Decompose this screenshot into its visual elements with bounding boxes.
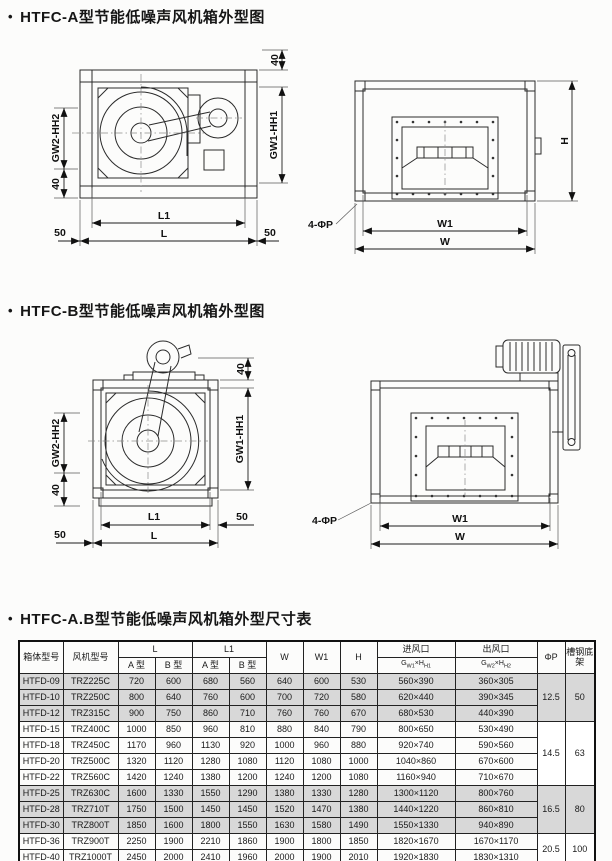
table-row: HTFD-12TRZ315C900750860710760760670680×5…	[19, 706, 595, 722]
table-cell: 1130	[192, 738, 229, 754]
htfc-b-front-drawing: W1 W 4-ΦP	[308, 328, 608, 560]
table-cell: 530	[340, 674, 377, 690]
col-base: 槽钢底架	[565, 641, 595, 674]
table-cell: 920×740	[377, 738, 455, 754]
table-cell: 1800	[192, 818, 229, 834]
table-cell: 600	[155, 674, 192, 690]
dim-label-40-top: 40	[235, 363, 247, 375]
dim-label-h: H	[559, 137, 571, 145]
phi-p-group-cell: 16.5	[537, 786, 565, 834]
table-cell: 1120	[155, 754, 192, 770]
table-cell: 1040×860	[377, 754, 455, 770]
section-table-title-text: HTFC-A.B型节能低噪声风机箱外型尺寸表	[20, 611, 312, 628]
col-W: W	[266, 641, 303, 674]
table-cell: 1450	[192, 802, 229, 818]
dim-label-40-left: 40	[50, 178, 62, 190]
table-cell: 1200	[303, 770, 340, 786]
table-cell: 530×490	[455, 722, 537, 738]
table-cell: 670	[340, 706, 377, 722]
section-a-title: •HTFC-A型节能低噪声风机箱外型图	[8, 6, 265, 27]
table-cell: TRZ900T	[63, 834, 118, 850]
table-cell: HTFD-12	[19, 706, 63, 722]
table-cell: 1330	[155, 786, 192, 802]
dimension-table: 箱体型号 风机型号 L L1 W W1 H 进风口 出风口 ΦP 槽钢底架 A …	[18, 640, 596, 861]
table-cell: 790	[340, 722, 377, 738]
table-cell: 860×810	[455, 802, 537, 818]
col-L1: L1	[192, 641, 266, 658]
table-cell: HTFD-40	[19, 850, 63, 861]
table-cell: 940×890	[455, 818, 537, 834]
table-cell: 1600	[155, 818, 192, 834]
dim-label-w1: W1	[437, 218, 453, 230]
table-cell: 960	[192, 722, 229, 738]
col-fan-model: 风机型号	[63, 641, 118, 674]
table-cell: 560	[229, 674, 266, 690]
table-cell: HTFD-22	[19, 770, 63, 786]
dim-label-50-right: 50	[264, 227, 276, 239]
spec-table-body: HTFD-09TRZ225C720600680560640600530560×3…	[19, 674, 595, 861]
table-cell: HTFD-15	[19, 722, 63, 738]
table-cell: 1820×1670	[377, 834, 455, 850]
table-cell: 560×390	[377, 674, 455, 690]
dim-label-l: L	[151, 530, 158, 542]
table-cell: HTFD-25	[19, 786, 63, 802]
table-cell: 1900	[155, 834, 192, 850]
table-row: HTFD-40TRZ1000T2450200024101960200019002…	[19, 850, 595, 861]
bullet-icon: •	[8, 9, 13, 24]
table-row: HTFD-22TRZ560C14201240138012001240120010…	[19, 770, 595, 786]
table-cell: 680×530	[377, 706, 455, 722]
table-cell: 2000	[155, 850, 192, 861]
col-outlet-formula: GW2×HH2	[455, 658, 537, 674]
table-cell: 1860	[229, 834, 266, 850]
dim-label-gw1hh1: GW1-HH1	[234, 415, 246, 464]
dim-label-4phip: 4-ΦP	[312, 515, 337, 527]
table-cell: 1470	[303, 802, 340, 818]
table-cell: 640	[155, 690, 192, 706]
table-cell: 1080	[303, 754, 340, 770]
dim-label-4phip: 4-ΦP	[308, 219, 333, 231]
table-cell: 1670×1170	[455, 834, 537, 850]
table-cell: 840	[303, 722, 340, 738]
table-cell: 2450	[118, 850, 155, 861]
table-cell: 1900	[303, 850, 340, 861]
table-cell: 1520	[266, 802, 303, 818]
table-cell: 1550	[192, 786, 229, 802]
table-cell: HTFD-20	[19, 754, 63, 770]
table-cell: 1850	[340, 834, 377, 850]
dim-label-w: W	[440, 236, 450, 248]
table-row: HTFD-25TRZ630C16001330155012901380133012…	[19, 786, 595, 802]
phi-p-group-cell: 20.5	[537, 834, 565, 861]
table-cell: 810	[229, 722, 266, 738]
table-cell: 620×440	[377, 690, 455, 706]
table-cell: 1580	[303, 818, 340, 834]
table-cell: 590×560	[455, 738, 537, 754]
table-cell: TRZ225C	[63, 674, 118, 690]
table-cell: 2250	[118, 834, 155, 850]
table-cell: 850	[155, 722, 192, 738]
table-cell: 640	[266, 674, 303, 690]
col-L-type-a: A 型	[118, 658, 155, 674]
phi-p-group-cell: 14.5	[537, 722, 565, 786]
table-cell: TRZ400C	[63, 722, 118, 738]
dim-label-l1: L1	[158, 210, 170, 222]
table-cell: 680	[192, 674, 229, 690]
table-cell: 960	[303, 738, 340, 754]
section-b-title-text: HTFC-B型节能低噪声风机箱外型图	[20, 303, 265, 320]
table-cell: 1380	[192, 770, 229, 786]
table-cell: 1830×1310	[455, 850, 537, 861]
dim-label-l: L	[161, 228, 168, 240]
table-cell: 960	[155, 738, 192, 754]
table-cell: 1850	[118, 818, 155, 834]
table-cell: TRZ250C	[63, 690, 118, 706]
table-cell: 360×305	[455, 674, 537, 690]
table-cell: 1630	[266, 818, 303, 834]
table-cell: 760	[266, 706, 303, 722]
dim-label-w: W	[455, 531, 465, 543]
table-cell: 1240	[266, 770, 303, 786]
table-cell: 710×670	[455, 770, 537, 786]
table-cell: 580	[340, 690, 377, 706]
table-cell: TRZ630C	[63, 786, 118, 802]
bullet-icon: •	[8, 611, 13, 626]
table-cell: 1330	[303, 786, 340, 802]
table-cell: TRZ800T	[63, 818, 118, 834]
section-table-title: •HTFC-A.B型节能低噪声风机箱外型尺寸表	[8, 608, 312, 629]
table-cell: 1200	[229, 770, 266, 786]
table-cell: 920	[229, 738, 266, 754]
table-row: HTFD-15TRZ400C1000850960810880840790800×…	[19, 722, 595, 738]
table-cell: 760	[303, 706, 340, 722]
table-cell: TRZ1000T	[63, 850, 118, 861]
table-cell: 1000	[340, 754, 377, 770]
table-cell: HTFD-09	[19, 674, 63, 690]
col-L1-type-b: B 型	[229, 658, 266, 674]
table-row: HTFD-20TRZ500C13201120128010801120108010…	[19, 754, 595, 770]
col-L: L	[118, 641, 192, 658]
table-cell: 670×600	[455, 754, 537, 770]
table-cell: 1490	[340, 818, 377, 834]
col-W1: W1	[303, 641, 340, 674]
dim-label-50-left: 50	[54, 529, 66, 541]
table-cell: 440×390	[455, 706, 537, 722]
table-row: HTFD-10TRZ250C800640760600700720580620×4…	[19, 690, 595, 706]
table-cell: 1960	[229, 850, 266, 861]
table-cell: 1240	[155, 770, 192, 786]
htfc-a-side-drawing: 40 GW1-HH1 GW2-HH2 40 L1 L 50 50	[52, 38, 302, 256]
dim-label-40-top: 40	[269, 54, 281, 66]
table-row: HTFD-36TRZ900T22501900221018601900180018…	[19, 834, 595, 850]
base-group-cell: 50	[565, 674, 595, 722]
table-cell: HTFD-10	[19, 690, 63, 706]
table-row: HTFD-28TRZ710T17501500145014501520147013…	[19, 802, 595, 818]
col-outlet: 出风口	[455, 641, 537, 658]
table-cell: 1550	[229, 818, 266, 834]
table-cell: TRZ315C	[63, 706, 118, 722]
section-a-title-text: HTFC-A型节能低噪声风机箱外型图	[20, 9, 265, 26]
dim-label-gw2hh2: GW2-HH2	[50, 419, 62, 468]
table-cell: 600	[303, 674, 340, 690]
table-cell: HTFD-30	[19, 818, 63, 834]
table-row: HTFD-18TRZ450C11709601130920100096088092…	[19, 738, 595, 754]
section-b-title: •HTFC-B型节能低噪声风机箱外型图	[8, 300, 265, 321]
table-cell: 1080	[340, 770, 377, 786]
base-group-cell: 80	[565, 786, 595, 834]
table-row: HTFD-30TRZ800T18501600180015501630158014…	[19, 818, 595, 834]
table-cell: HTFD-36	[19, 834, 63, 850]
table-cell: 1600	[118, 786, 155, 802]
table-cell: 1440×1220	[377, 802, 455, 818]
table-cell: TRZ710T	[63, 802, 118, 818]
table-cell: 750	[155, 706, 192, 722]
table-cell: 800×760	[455, 786, 537, 802]
table-cell: 1280	[192, 754, 229, 770]
table-cell: 1450	[229, 802, 266, 818]
table-cell: 1080	[229, 754, 266, 770]
table-cell: 760	[192, 690, 229, 706]
dim-label-gw1hh1: GW1-HH1	[268, 111, 280, 160]
table-cell: 710	[229, 706, 266, 722]
table-cell: 390×345	[455, 690, 537, 706]
col-phi-p: ΦP	[537, 641, 565, 674]
base-group-cell: 63	[565, 722, 595, 786]
table-cell: TRZ500C	[63, 754, 118, 770]
table-cell: 1170	[118, 738, 155, 754]
dim-label-gw2hh2: GW2-HH2	[50, 114, 62, 163]
dim-label-50-left: 50	[54, 227, 66, 239]
table-cell: 1550×1330	[377, 818, 455, 834]
col-inlet-formula: GW1×HH1	[377, 658, 455, 674]
table-cell: 1750	[118, 802, 155, 818]
table-cell: 800×650	[377, 722, 455, 738]
table-cell: 860	[192, 706, 229, 722]
table-cell: 1900	[266, 834, 303, 850]
table-cell: 800	[118, 690, 155, 706]
table-cell: 2210	[192, 834, 229, 850]
catalog-page: •HTFC-A型节能低噪声风机箱外型图	[0, 0, 612, 861]
table-cell: 1320	[118, 754, 155, 770]
table-cell: 600	[229, 690, 266, 706]
table-cell: TRZ450C	[63, 738, 118, 754]
table-cell: 1120	[266, 754, 303, 770]
dim-label-w1: W1	[452, 513, 468, 525]
col-L1-type-a: A 型	[192, 658, 229, 674]
table-cell: 1290	[229, 786, 266, 802]
table-cell: 1000	[266, 738, 303, 754]
table-cell: 2010	[340, 850, 377, 861]
table-cell: 2410	[192, 850, 229, 861]
table-cell: 1920×1830	[377, 850, 455, 861]
table-cell: 900	[118, 706, 155, 722]
col-inlet: 进风口	[377, 641, 455, 658]
table-cell: 700	[266, 690, 303, 706]
col-box-model: 箱体型号	[19, 641, 63, 674]
htfc-a-front-drawing: H W1 W 4-ΦP	[300, 38, 605, 256]
bullet-icon: •	[8, 303, 13, 318]
table-cell: 1280	[340, 786, 377, 802]
table-cell: 1380	[266, 786, 303, 802]
col-H: H	[340, 641, 377, 674]
table-cell: HTFD-28	[19, 802, 63, 818]
htfc-b-side-drawing: 40 GW1-HH1 GW2-HH2 40 L1 L 50 50	[48, 325, 288, 560]
table-cell: 1800	[303, 834, 340, 850]
table-cell: 1000	[118, 722, 155, 738]
dim-label-50-right: 50	[236, 511, 248, 523]
dim-label-40-left: 40	[50, 484, 62, 496]
table-cell: HTFD-18	[19, 738, 63, 754]
table-cell: 880	[340, 738, 377, 754]
table-cell: 880	[266, 722, 303, 738]
table-cell: 2000	[266, 850, 303, 861]
phi-p-group-cell: 12.5	[537, 674, 565, 722]
table-cell: 1300×1120	[377, 786, 455, 802]
spec-table-container: 箱体型号 风机型号 L L1 W W1 H 进风口 出风口 ΦP 槽钢底架 A …	[18, 640, 596, 861]
table-cell: TRZ560C	[63, 770, 118, 786]
table-cell: 720	[118, 674, 155, 690]
table-cell: 1380	[340, 802, 377, 818]
base-group-cell: 100	[565, 834, 595, 861]
table-cell: 1500	[155, 802, 192, 818]
dim-label-l1: L1	[148, 511, 160, 523]
table-cell: 720	[303, 690, 340, 706]
table-cell: 1420	[118, 770, 155, 786]
table-cell: 1160×940	[377, 770, 455, 786]
table-row: HTFD-09TRZ225C720600680560640600530560×3…	[19, 674, 595, 690]
col-L-type-b: B 型	[155, 658, 192, 674]
